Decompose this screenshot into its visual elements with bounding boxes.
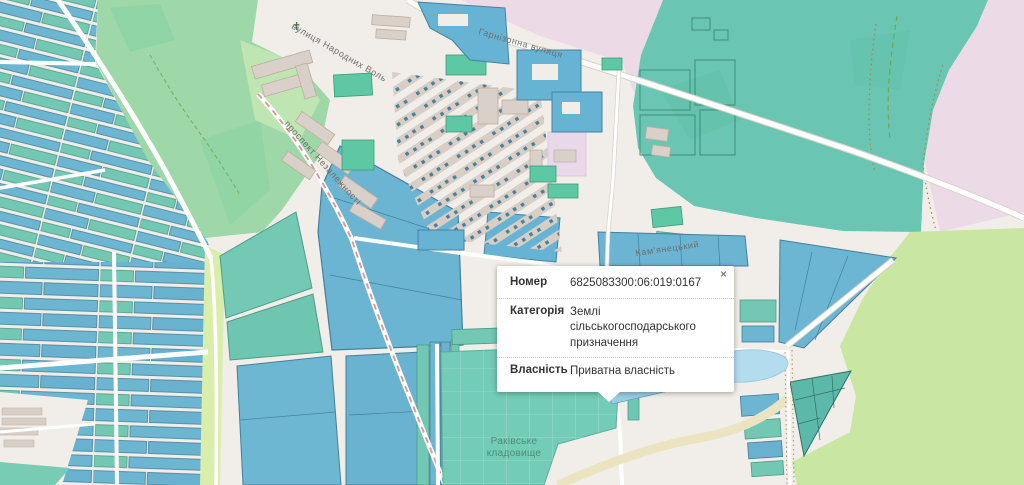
popup-row-category: Категорія Землі сільськогосподарського п… [497, 298, 734, 358]
parcel-info-popup: × Номер 6825083300:06:019:0167 Категорія… [497, 266, 734, 392]
popup-row-category-value: Землі сільськогосподарського призначення [570, 305, 726, 352]
cadastral-map-app: ✝ [0, 0, 1024, 485]
popup-row-ownership-label: Власність [510, 364, 570, 380]
popup-row-category-label: Категорія [510, 305, 570, 352]
popup-row-number-value: 6825083300:06:019:0167 [570, 276, 726, 292]
popup-row-ownership-value: Приватна власність [570, 364, 726, 380]
popup-close-button[interactable]: × [720, 268, 727, 280]
popup-tail [597, 391, 621, 402]
cemetery-label-line2: кладовище [487, 448, 542, 459]
popup-row-number-label: Номер [510, 276, 570, 292]
cemetery-label-line1: Раківське [491, 436, 538, 447]
popup-row-ownership: Власність Приватна власність [497, 357, 734, 386]
map-canvas[interactable]: ✝ [0, 0, 1024, 485]
popup-row-number: Номер 6825083300:06:019:0167 [497, 270, 734, 298]
